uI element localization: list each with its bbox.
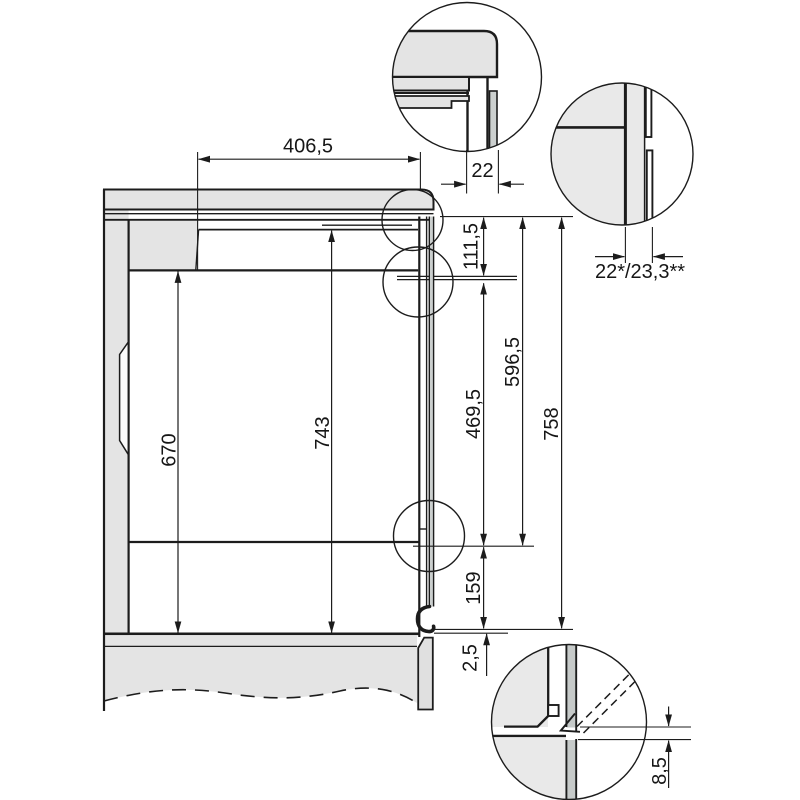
base-cabinet bbox=[104, 190, 417, 746]
dim-label-niche-height: 670 bbox=[159, 433, 181, 466]
dimension-interior-height: 743 bbox=[312, 231, 334, 633]
dimension-door-height: 469,5 bbox=[463, 283, 485, 545]
installation-diagram: 406,5 111,5 469,5 596,5 758 159 2,5 743 … bbox=[0, 0, 800, 800]
dim-label-upper-front-height: 111,5 bbox=[461, 223, 483, 270]
dim-label-total-height: 758 bbox=[541, 407, 563, 440]
dimension-front-thickness: 22 bbox=[441, 150, 524, 194]
dimension-front-height: 596,5 bbox=[502, 218, 524, 546]
detail1-countertop bbox=[382, 31, 497, 77]
plinth-panel bbox=[418, 638, 433, 710]
dimension-plinth-height: 159 bbox=[463, 547, 485, 628]
dimension-floor-gap: 8,5 bbox=[578, 707, 691, 789]
dim-label-door-height: 469,5 bbox=[463, 389, 485, 439]
dim-label-top-depth: 406,5 bbox=[283, 136, 333, 158]
top-rail bbox=[129, 221, 199, 270]
dimension-total-height: 758 bbox=[541, 218, 563, 629]
detail3-door-lower bbox=[566, 740, 576, 800]
dimension-bottom-offset: 2,5 bbox=[460, 634, 487, 676]
side-panel-groove bbox=[120, 342, 129, 455]
bottom-shelf bbox=[104, 634, 419, 647]
detail-view-side-panel: 22*/23,3** bbox=[548, 78, 693, 283]
countertop bbox=[104, 190, 434, 220]
detail2-panel-fill bbox=[548, 80, 645, 228]
dim-label-side-panel-thickness: 22*/23,3** bbox=[595, 261, 685, 283]
detail3-lower-fill bbox=[491, 737, 566, 800]
dim-label-floor-gap: 8,5 bbox=[649, 757, 671, 785]
detail3-profile-step bbox=[548, 705, 558, 716]
detail3-swing-line-1 bbox=[577, 658, 646, 727]
detail3-swing-line-2 bbox=[584, 666, 652, 734]
detail1-door-face bbox=[490, 91, 498, 154]
detail2-trim-lower bbox=[647, 150, 653, 228]
dimension-side-panel-thickness: 22*/23,3** bbox=[595, 227, 685, 283]
dim-label-front-thickness: 22 bbox=[471, 160, 493, 182]
detail1-front-frame bbox=[468, 70, 488, 154]
dim-label-plinth-height: 159 bbox=[463, 571, 485, 604]
dimension-upper-front-height: 111,5 bbox=[461, 218, 484, 276]
detail-view-top-corner: 22 bbox=[382, 3, 542, 194]
dim-label-front-height: 596,5 bbox=[502, 337, 524, 387]
detail3-cabinet-fill bbox=[491, 644, 548, 727]
dim-label-interior-height: 743 bbox=[312, 416, 334, 449]
detail1-sub-layer bbox=[382, 77, 469, 91]
dimension-niche-height: 670 bbox=[159, 271, 181, 632]
detail-view-bottom-gap: 8,5 bbox=[491, 644, 691, 800]
dim-label-bottom-offset: 2,5 bbox=[460, 644, 482, 672]
